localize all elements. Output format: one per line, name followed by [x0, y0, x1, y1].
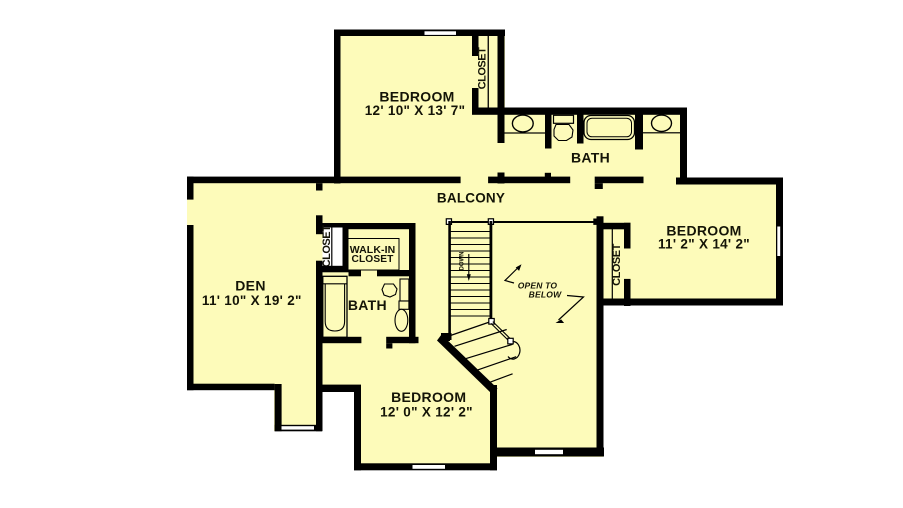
svg-text:CLOSET: CLOSET: [321, 225, 333, 267]
svg-text:11' 2" X 14' 2": 11' 2" X 14' 2": [658, 237, 750, 252]
svg-text:DOWN: DOWN: [460, 252, 466, 271]
svg-text:BATH: BATH: [348, 297, 387, 313]
svg-text:12' 10" X 13' 7": 12' 10" X 13' 7": [365, 103, 466, 118]
svg-text:12' 0" X 12' 2": 12' 0" X 12' 2": [380, 405, 473, 420]
svg-text:CLOSET: CLOSET: [352, 254, 395, 265]
svg-text:DEN: DEN: [235, 278, 265, 294]
svg-text:BALCONY: BALCONY: [437, 191, 505, 206]
svg-text:11' 10" X 19' 2": 11' 10" X 19' 2": [202, 293, 302, 308]
svg-text:BATH: BATH: [571, 150, 610, 166]
svg-text:CLOSET: CLOSET: [611, 243, 623, 285]
svg-text:BEDROOM: BEDROOM: [391, 389, 466, 405]
svg-text:BELOW: BELOW: [529, 290, 562, 300]
svg-text:CLOSET: CLOSET: [477, 47, 489, 89]
